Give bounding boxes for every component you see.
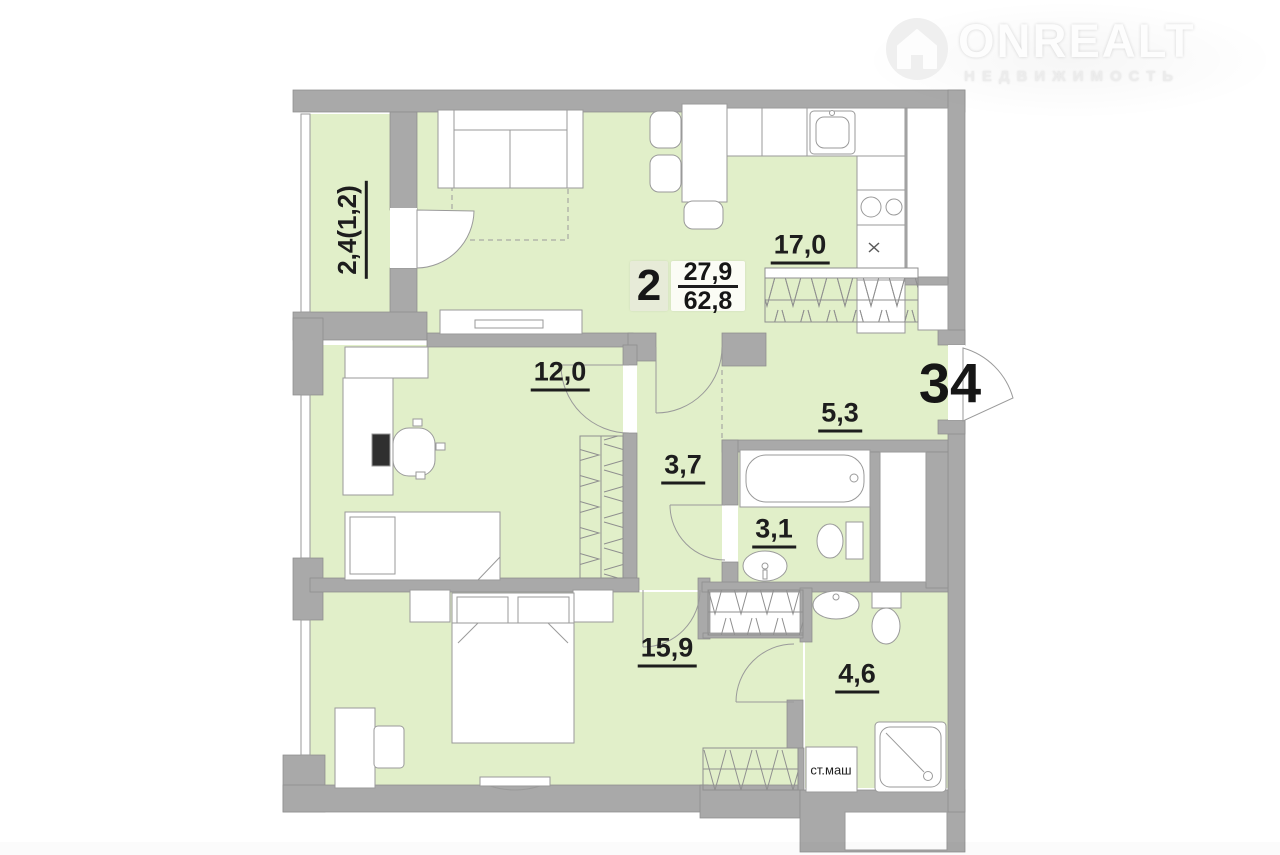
bathroom-area-label: 3,1 [752, 514, 796, 549]
floorplan-image: 2,4(1,2) 17,0 12,0 3,7 5,3 3,1 15,9 4,6 … [0, 0, 1280, 855]
double-bed-icon [452, 593, 574, 743]
apartment-number: 34 [919, 351, 981, 416]
hallway-area-label: 3,7 [661, 450, 705, 485]
master-window [301, 620, 310, 755]
chair-icon [374, 726, 404, 768]
shower-sink-icon [813, 591, 859, 619]
hall-nook [918, 285, 948, 330]
house-logo-icon [884, 16, 950, 87]
stove-icon [857, 190, 905, 225]
apartment-summary: 2 27,9 62,8 [630, 261, 745, 311]
hall-wardrobe-shelf [765, 268, 918, 278]
washing-machine-label: ст.маш [810, 763, 851, 778]
bottom-strip [0, 842, 1280, 855]
balcony-window [301, 114, 310, 312]
floorplan-drawing [0, 0, 1280, 855]
rooms-count: 2 [630, 261, 668, 311]
kitchen-area-label: 17,0 [771, 230, 830, 265]
nightstand-right-icon [573, 590, 613, 622]
master-area-label: 15,9 [638, 633, 697, 668]
logo-subtitle: НЕДВИЖИМОСТЬ [958, 68, 1196, 85]
bedroom-area-label: 12,0 [531, 357, 590, 392]
shower-room-area-label: 4,6 [835, 659, 879, 694]
balcony-door-opening [390, 208, 417, 268]
total-area: 62,8 [684, 288, 733, 313]
dresser-icon [335, 708, 375, 788]
living-area: 27,9 [678, 260, 739, 288]
nightstand-left-icon [410, 590, 450, 622]
tv-stand-icon [440, 310, 582, 334]
area-fraction: 27,9 62,8 [671, 261, 745, 311]
balcony-area-label: 2,4(1,2) [322, 150, 378, 310]
monitor-icon [372, 434, 390, 466]
logo-title: ONREALT [958, 16, 1196, 66]
vent-shaft [880, 452, 926, 582]
kitchen-sink-icon [810, 111, 855, 155]
entry-hall-area-label: 5,3 [818, 398, 862, 433]
single-bed-icon [345, 512, 500, 580]
shower-icon [875, 722, 946, 792]
onrealt-logo: ONREALT НЕДВИЖИМОСТЬ [884, 16, 1254, 87]
bathtub-icon [740, 450, 870, 507]
utility-column [907, 108, 948, 277]
bedroom-window [301, 395, 310, 558]
bath-sink-icon [743, 551, 787, 581]
toilet-second-icon [872, 592, 901, 644]
